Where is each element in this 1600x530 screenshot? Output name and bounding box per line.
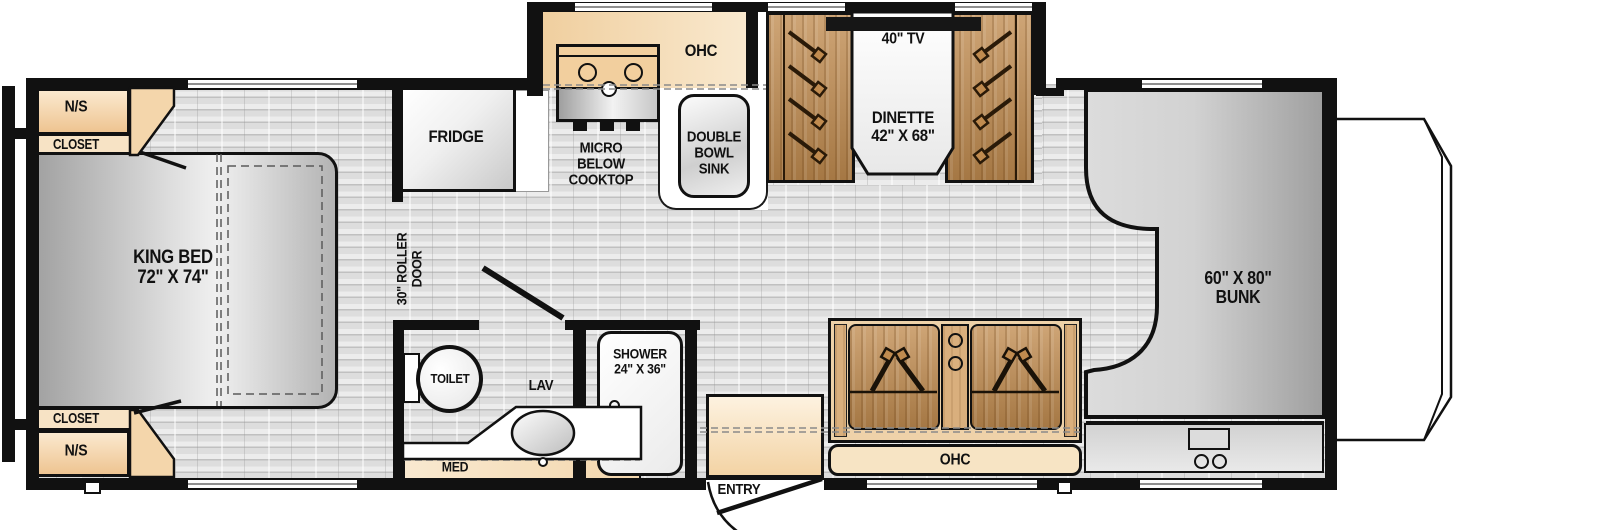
sink-label: DOUBLE BOWL SINK — [687, 129, 741, 176]
burner-icon — [601, 81, 617, 97]
entry-step — [84, 481, 101, 494]
cab-outline — [1337, 119, 1451, 440]
entry-step — [1057, 481, 1072, 494]
dash-panel — [1188, 428, 1230, 450]
lav-label: LAV — [529, 378, 554, 394]
entry-cabinet — [706, 394, 824, 478]
dinette-label: DINETTE 42" X 68" — [871, 109, 934, 145]
window — [867, 480, 1037, 488]
window — [955, 3, 1032, 11]
cooktop-knob — [573, 122, 587, 131]
med-label: MED — [442, 460, 469, 475]
dinette-bench-left — [766, 12, 855, 183]
toilet-label: TOILET — [431, 372, 470, 386]
cooktop-knob — [600, 122, 614, 131]
cooktop-rail — [559, 55, 657, 57]
dash-console — [1084, 423, 1324, 473]
window — [188, 480, 357, 488]
bath-top-wall-b — [565, 320, 700, 330]
kitchen-ohc-label: OHC — [685, 42, 717, 60]
dash-dial-icon — [1194, 454, 1209, 469]
cupholder-icon — [948, 333, 963, 348]
ns-bottom-label: N/S — [65, 444, 88, 461]
seat-right — [970, 324, 1062, 430]
right-wall — [1325, 78, 1337, 490]
dinette-bench-right — [945, 12, 1034, 183]
kitchen-slide-left-wall — [527, 2, 543, 96]
burner-icon — [578, 63, 597, 82]
window — [768, 3, 845, 11]
burner-icon — [624, 63, 643, 82]
shower-label: SHOWER 24" X 36" — [613, 346, 667, 375]
fridge-label: FRIDGE — [429, 128, 484, 146]
tv — [826, 17, 981, 31]
window — [188, 80, 357, 88]
shower-left-wall — [573, 330, 586, 478]
dinette-slide-right-wall — [1034, 2, 1046, 95]
tv-label: 40" TV — [882, 32, 925, 49]
theater-seats — [828, 318, 1082, 443]
window — [1140, 480, 1262, 488]
armrest-right — [1064, 324, 1077, 437]
cooktop — [556, 44, 660, 122]
closet-top-label: CLOSET — [53, 137, 99, 153]
shower-right-wall — [685, 320, 697, 478]
shower-handle-icon — [609, 400, 620, 411]
window — [1142, 80, 1262, 88]
entry-label: ENTRY — [718, 482, 761, 498]
bunk-label: 60" X 80" BUNK — [1204, 269, 1271, 307]
rv-floorplan-diagram: N/S CLOSET KING BED 72" X 74" CLOSET N/S… — [0, 0, 1600, 530]
roller-door-label: 30" ROLLER DOOR — [394, 233, 423, 306]
micro-label: MICRO BELOW COOKTOP — [569, 140, 634, 187]
seat-left — [848, 324, 940, 430]
slide-divider-wall — [746, 2, 758, 88]
cupholder-icon — [948, 356, 963, 371]
bottom-wall-left — [26, 478, 706, 490]
window — [575, 3, 712, 11]
living-ohc-label: OHC — [940, 453, 970, 470]
bedroom-divider-wall — [392, 88, 403, 202]
dash-dial-icon — [1212, 454, 1227, 469]
rear-slide-wall — [2, 86, 15, 462]
armrest-left — [834, 324, 847, 437]
bath-left-wall — [393, 320, 404, 478]
bath-top-wall-a — [393, 320, 479, 330]
cooktop-front — [559, 87, 657, 119]
cooktop-knob — [626, 122, 640, 131]
ns-top-label: N/S — [65, 100, 88, 117]
king-bed-label: KING BED 72" X 74" — [133, 248, 213, 288]
fridge-end-panel — [515, 90, 549, 192]
left-wall — [26, 78, 39, 490]
closet-bottom-label: CLOSET — [53, 411, 99, 427]
